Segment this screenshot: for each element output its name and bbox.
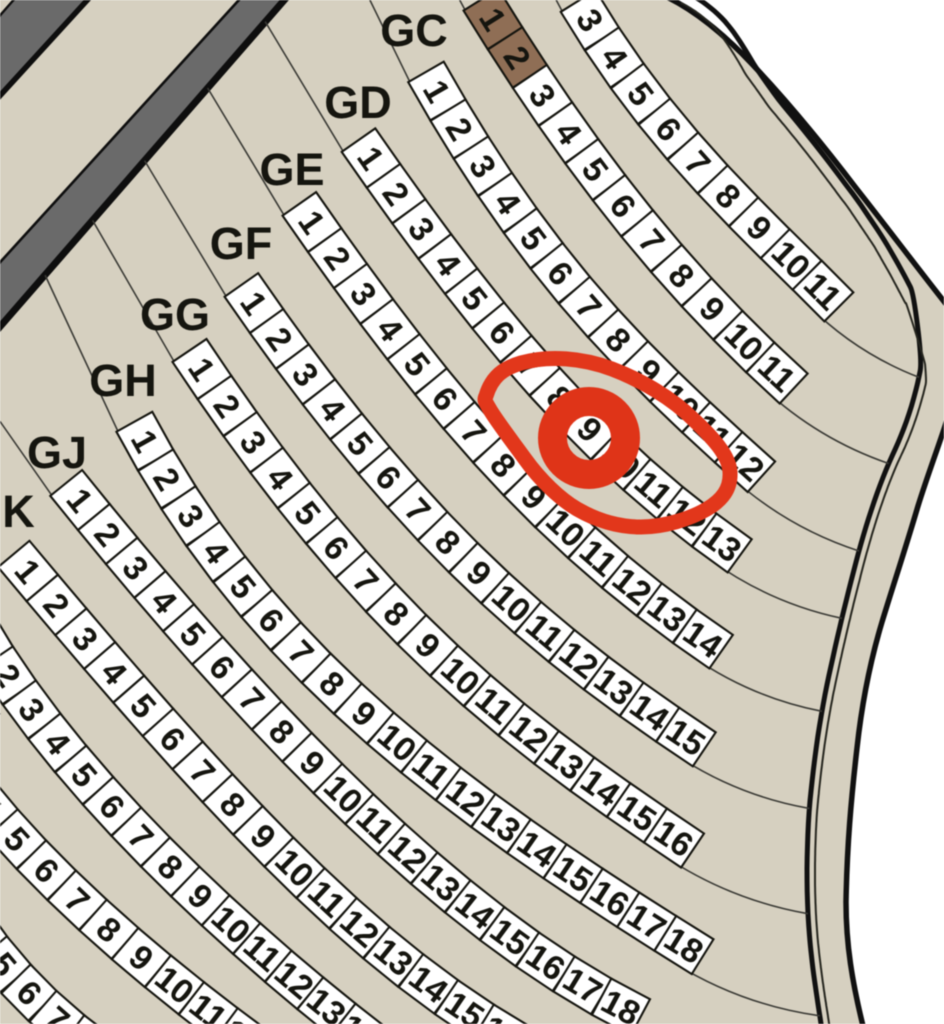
svg-text:GG: GG — [140, 289, 210, 340]
svg-text:GJ: GJ — [27, 427, 87, 478]
svg-text:GD: GD — [324, 77, 392, 128]
svg-text:GC: GC — [380, 5, 448, 56]
svg-text:GH: GH — [89, 355, 157, 406]
svg-text:GF: GF — [210, 218, 273, 269]
svg-text:GE: GE — [259, 144, 324, 195]
svg-text:GK: GK — [0, 486, 35, 537]
